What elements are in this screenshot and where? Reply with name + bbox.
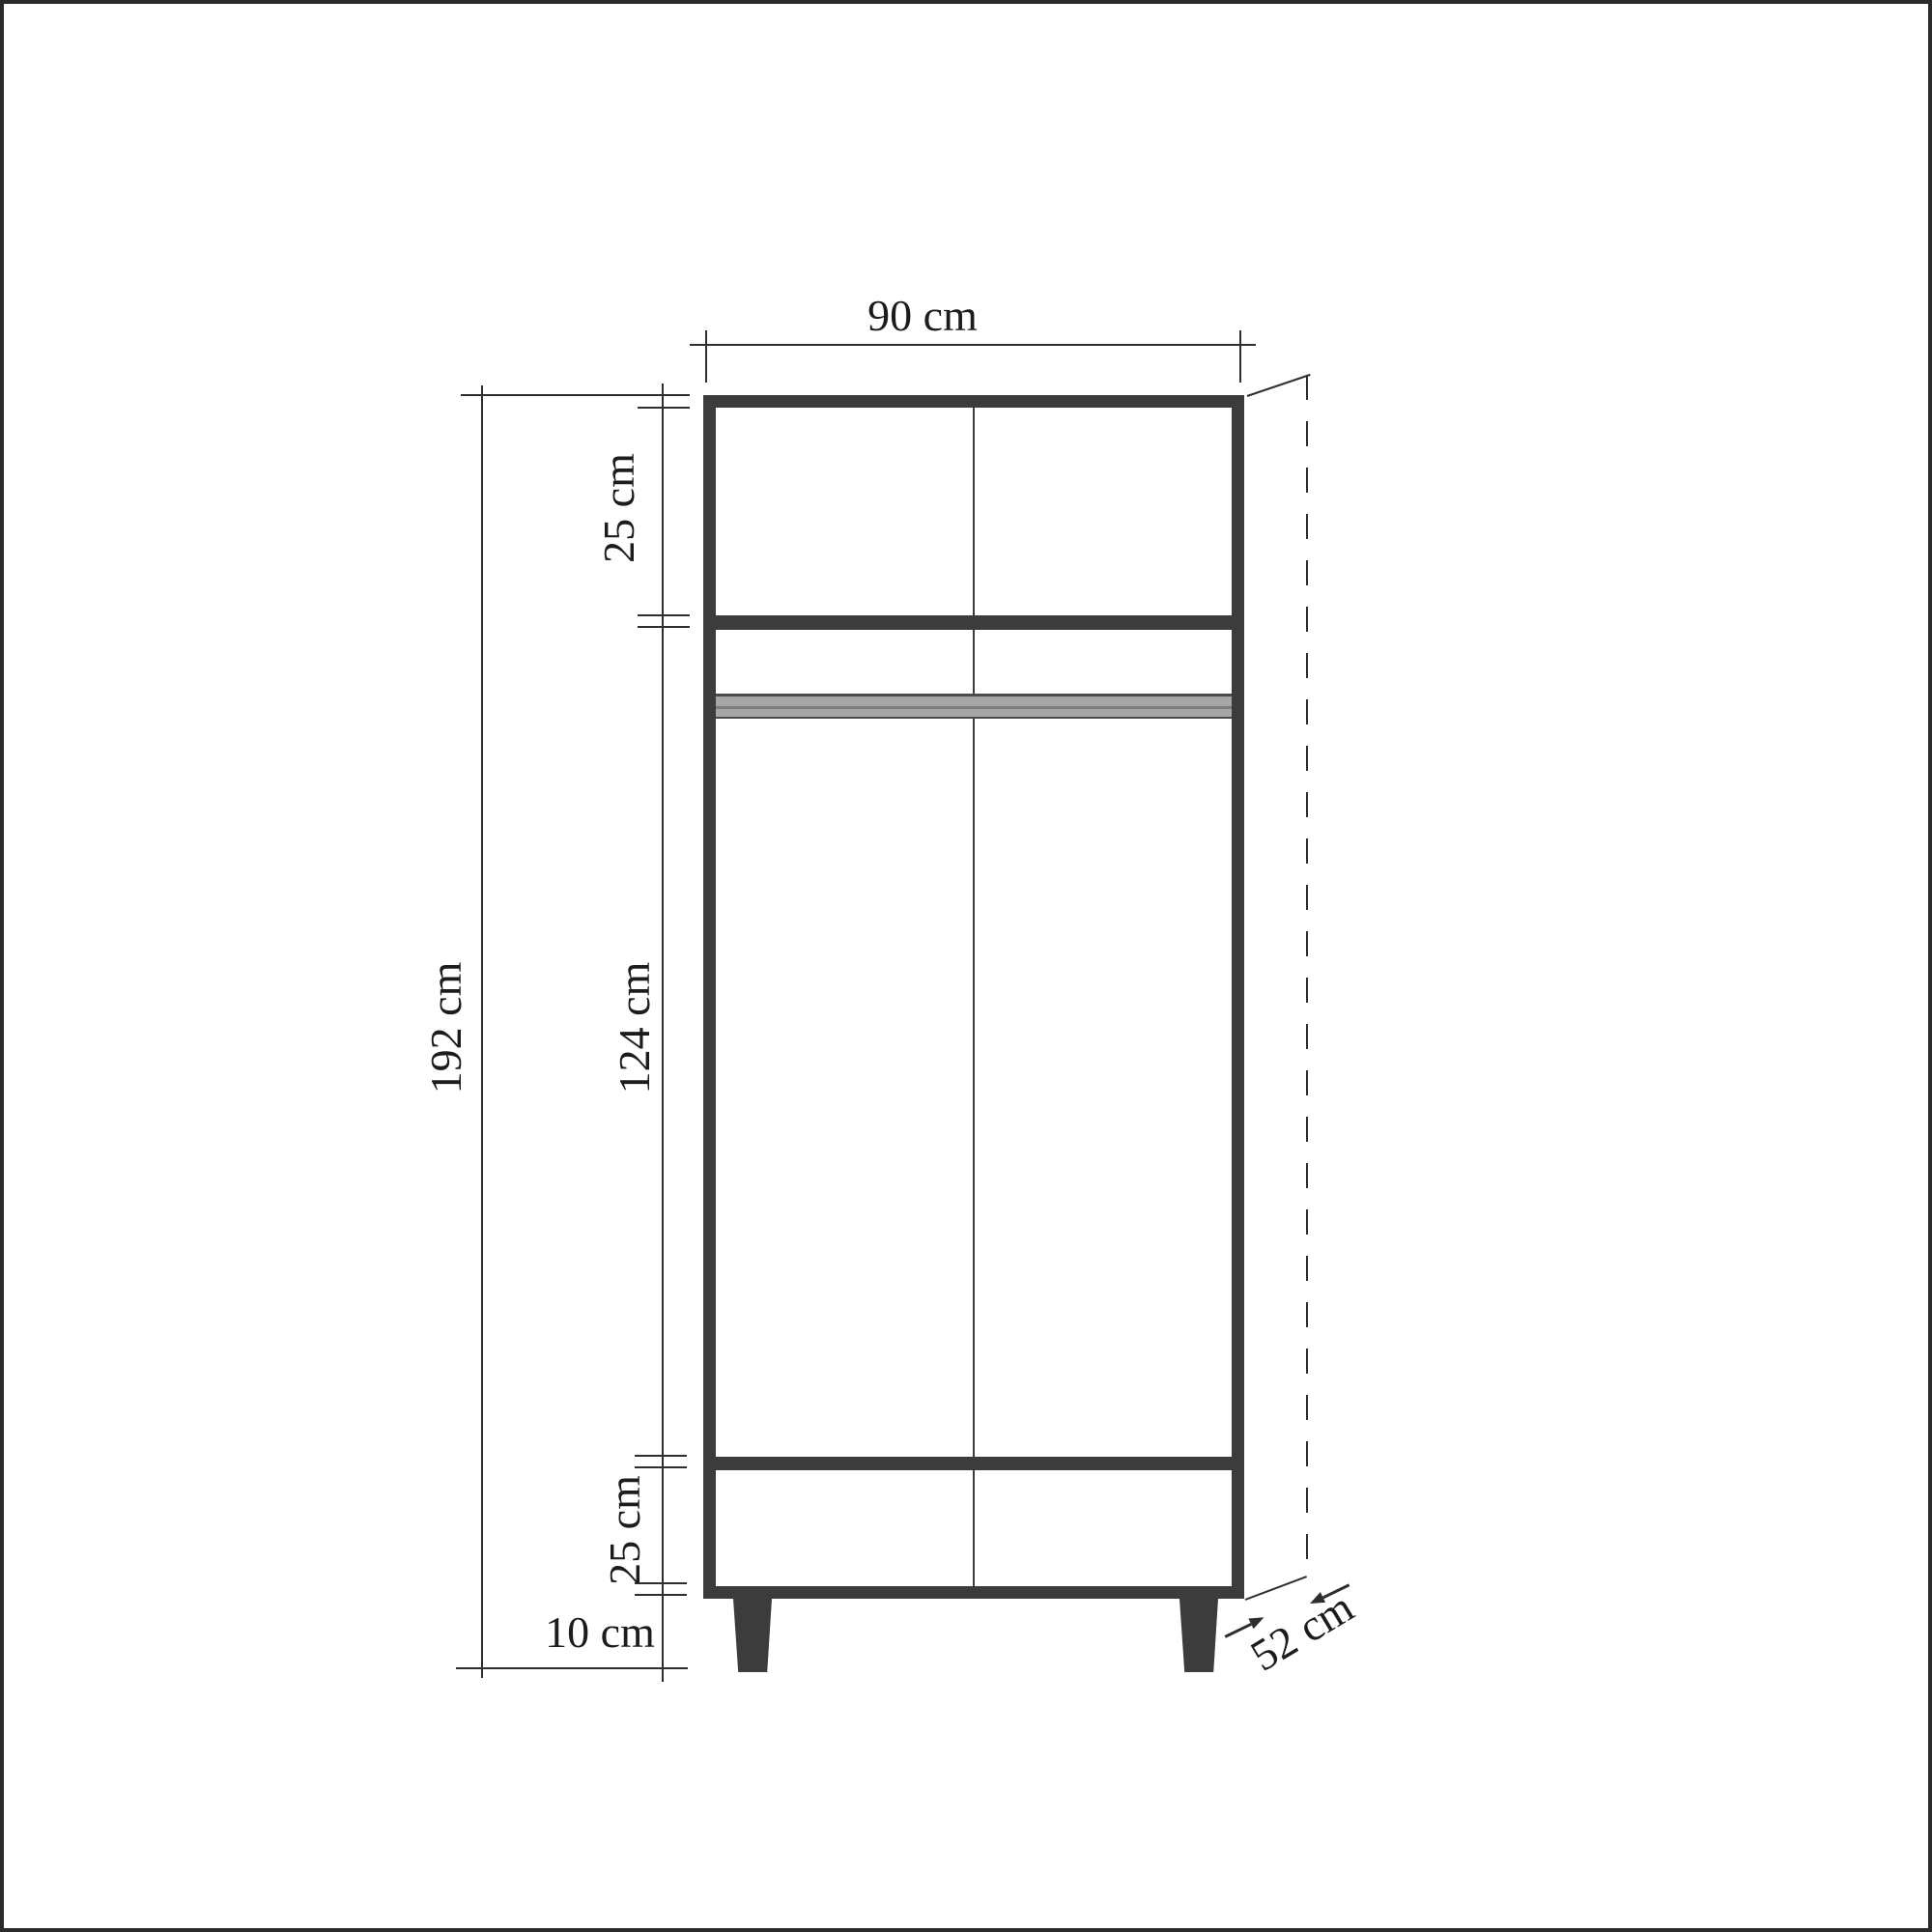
hanging-rail <box>716 694 1232 719</box>
tick-sec3-b <box>635 1594 687 1596</box>
top-section-dim-label: 25 cm <box>597 453 641 563</box>
wardrobe-body <box>703 395 1244 1599</box>
tick-top-long <box>461 394 690 396</box>
upper-doors-panel <box>716 408 1232 615</box>
depth-edge-dashed <box>1306 375 1308 1578</box>
hanging-rail-face-lower <box>716 709 1232 717</box>
middle-section-dim-label: 124 cm <box>612 962 657 1094</box>
shelf-split-line <box>973 630 975 694</box>
drawing-canvas: 90 cm 192 cm 25 cm 124 cm 25 cm 10 cm 52… <box>0 0 1932 1932</box>
sections-dim-line <box>662 384 664 1682</box>
bottom-section-dim-label: 25 cm <box>603 1475 647 1585</box>
height-dim-label: 192 cm <box>424 962 469 1094</box>
width-dim-label: 90 cm <box>867 294 978 338</box>
leg-height-dim-label: 10 cm <box>545 1610 655 1655</box>
right-leg <box>1179 1599 1218 1672</box>
left-leg <box>733 1599 772 1672</box>
width-dim-tick-left <box>705 330 707 383</box>
shelf-panel <box>716 630 1232 694</box>
depth-edge-top <box>1247 374 1311 397</box>
tick-sec2-b <box>635 1466 687 1468</box>
bottom-drawers-panel <box>716 1470 1232 1586</box>
tick-top-double <box>638 407 690 409</box>
bottom-drawer-split-line <box>973 1470 975 1586</box>
width-dim-line <box>690 344 1256 346</box>
upper-door-split-line <box>973 408 975 615</box>
hanging-rail-face <box>716 696 1232 706</box>
tick-sec1-b <box>638 626 690 628</box>
tick-bottom-long <box>456 1667 688 1669</box>
tick-sec2-a <box>635 1455 687 1457</box>
main-door-split-line <box>973 719 975 1457</box>
main-doors-panel <box>716 719 1232 1457</box>
depth-edge-bottom <box>1245 1576 1307 1601</box>
depth-dim-label: 52 cm <box>1243 1584 1360 1679</box>
height-dim-line <box>481 385 483 1678</box>
tick-sec1-a <box>638 614 690 616</box>
width-dim-tick-right <box>1239 330 1241 383</box>
